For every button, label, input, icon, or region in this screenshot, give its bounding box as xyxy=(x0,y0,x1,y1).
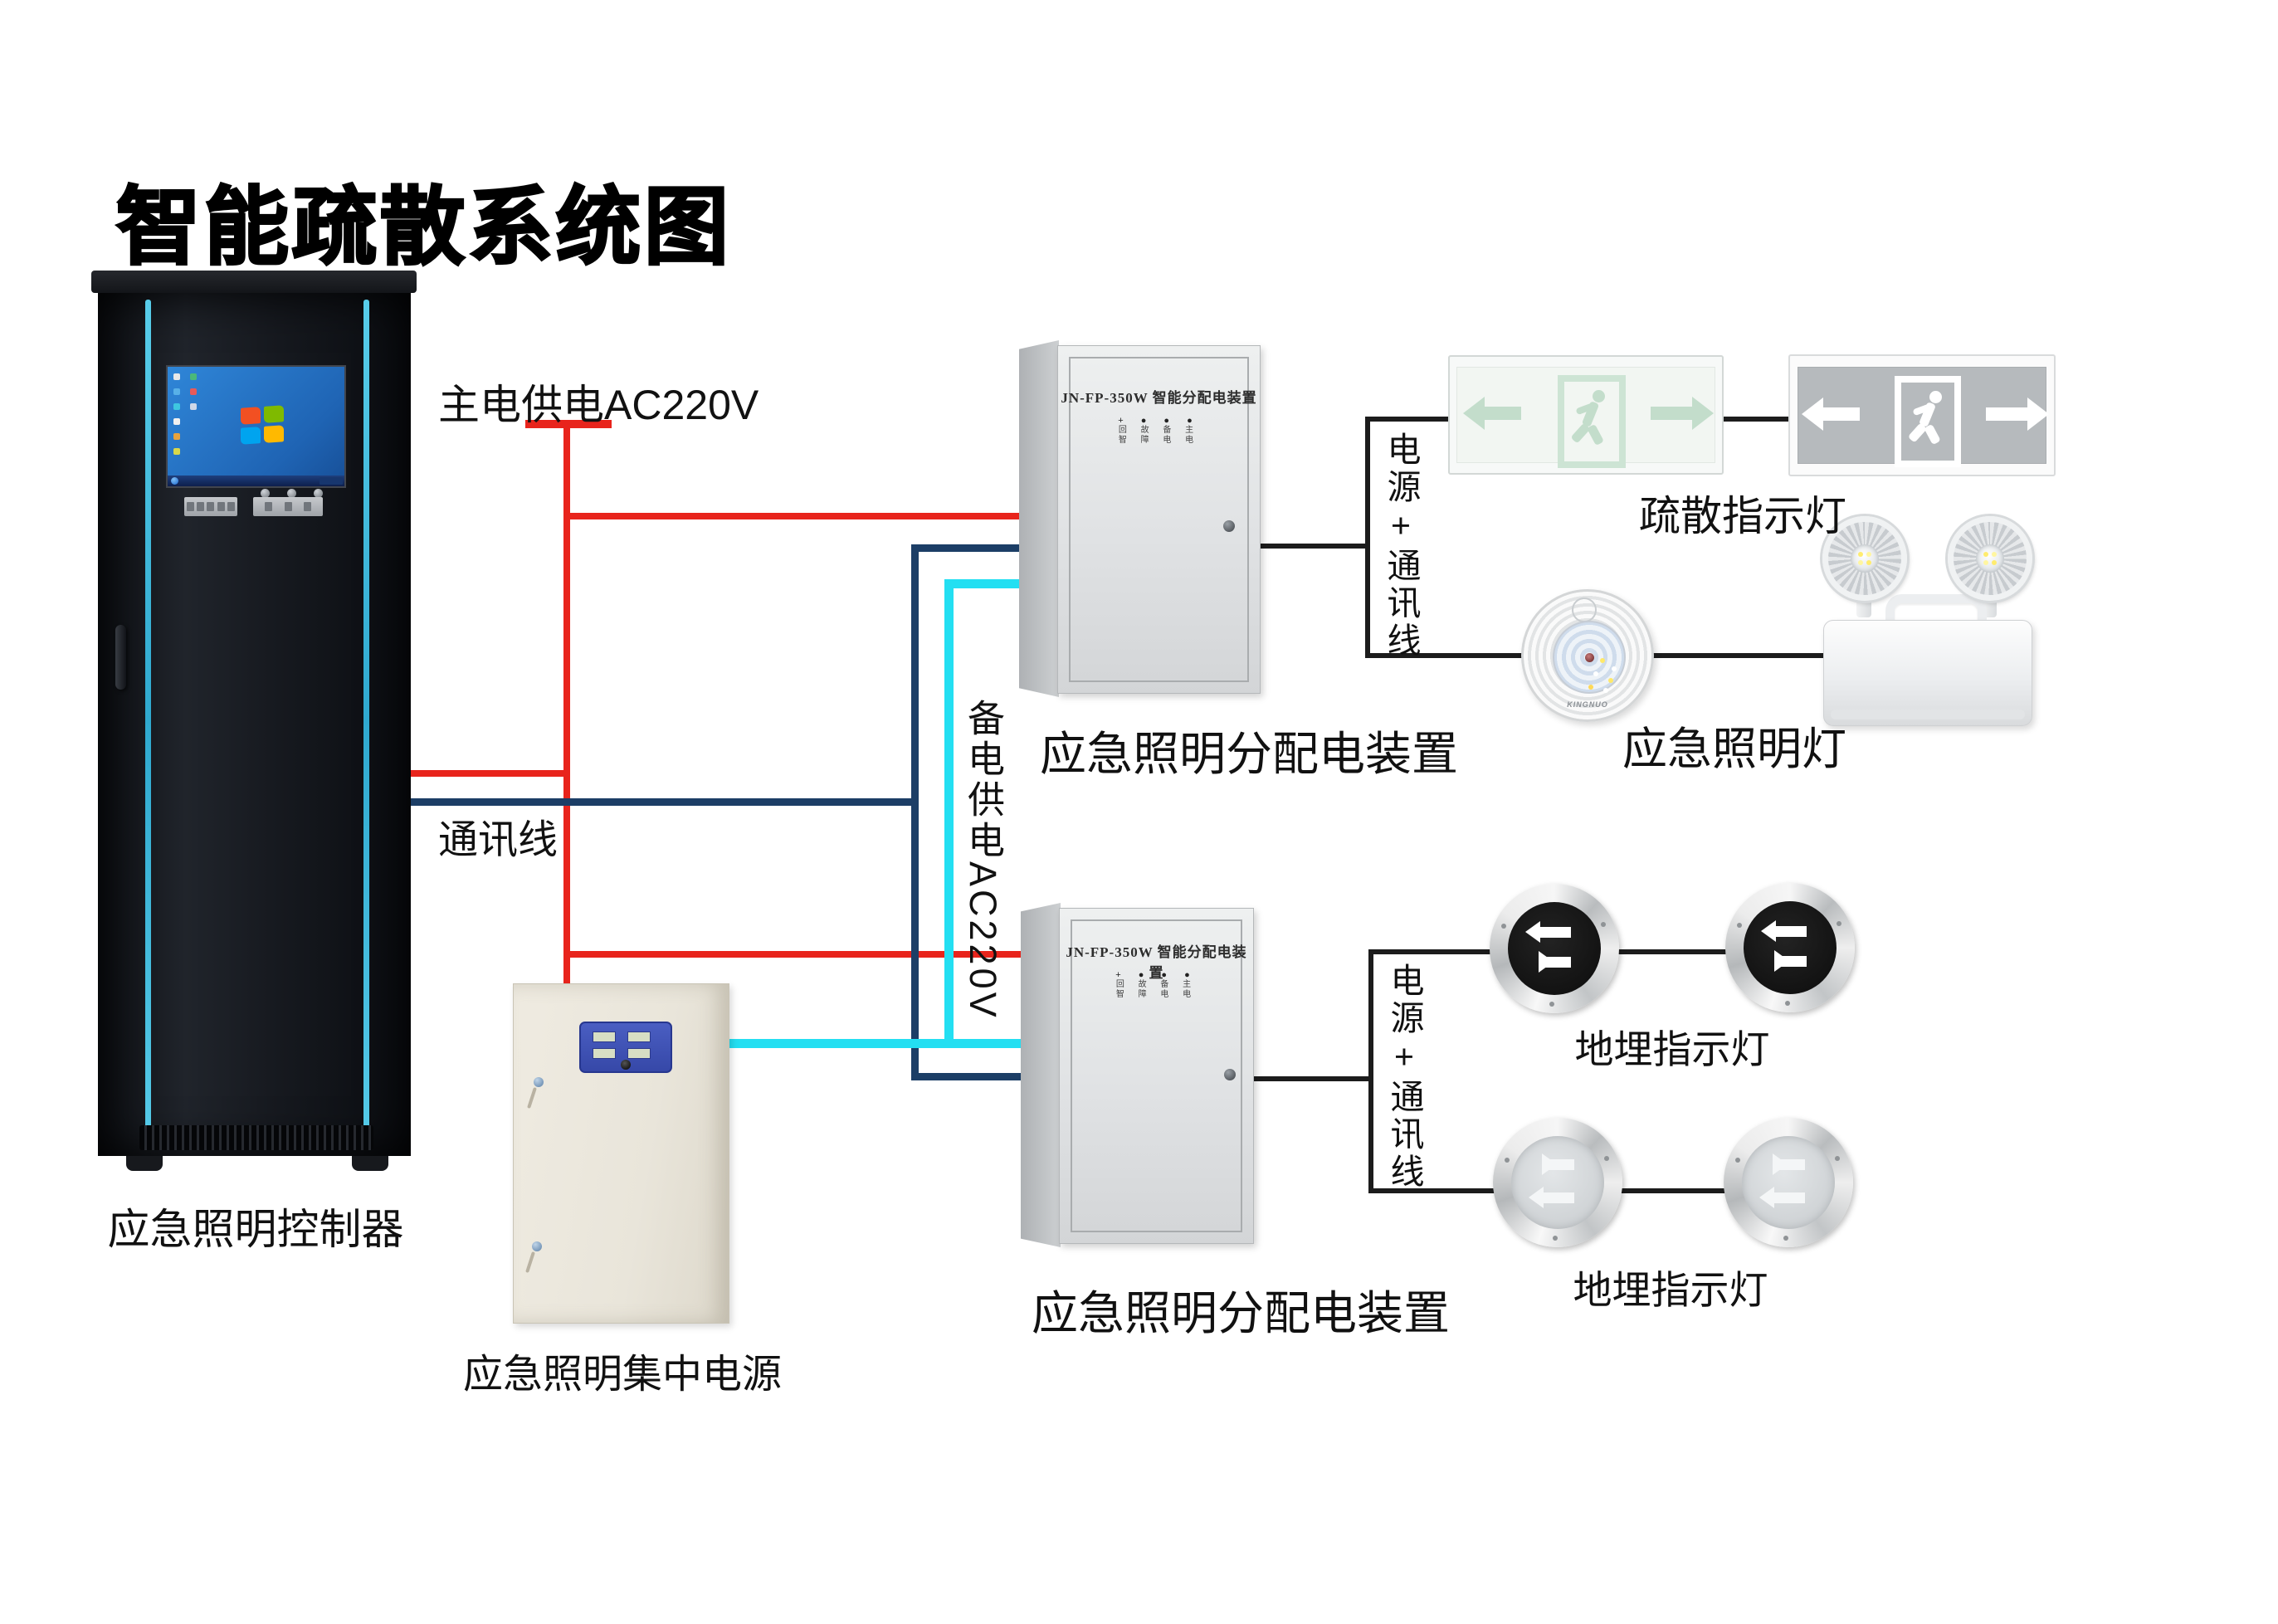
running-man-icon xyxy=(1571,390,1607,445)
cabinet-key-lock xyxy=(532,1241,542,1251)
comm-line-vertical xyxy=(911,544,919,1080)
cabinet-accent-stripe-right xyxy=(363,300,369,1141)
comm-branch-box2 xyxy=(911,1073,1021,1080)
box1-output-line xyxy=(1256,544,1368,549)
emergency-light-label: 应急照明灯 xyxy=(1614,712,1855,778)
distribution-box-2: JN-FP-350W 智能分配电装置 + ● ● ● 回 故 备 主 智 障 电… xyxy=(1021,903,1253,1247)
desktop-icon xyxy=(190,373,197,380)
ground-indicator-light-4 xyxy=(1724,1118,1853,1247)
ceiling-emergency-light: KINGNUO xyxy=(1521,589,1654,722)
twin-lamp-head-right xyxy=(1948,516,2032,601)
ground-light-label-1: 地埋指示灯 xyxy=(1560,1017,1784,1075)
light-face xyxy=(1508,902,1601,995)
bracket1-vertical xyxy=(1365,419,1370,658)
box2-output-line xyxy=(1253,1076,1373,1081)
box-lock xyxy=(1223,520,1235,532)
power-comm-label-1: 电源+通讯线 xyxy=(1376,432,1426,649)
power-supply-display-panel xyxy=(579,1022,672,1073)
windows-logo-icon xyxy=(241,405,284,445)
desktop-icon xyxy=(173,388,180,395)
cabinet-key-lock xyxy=(534,1077,544,1087)
bracket2-vertical xyxy=(1368,949,1373,1193)
cabinet-accent-stripe-left xyxy=(145,300,151,1141)
light-diffuser xyxy=(1553,621,1626,694)
ground-indicator-light-1 xyxy=(1490,884,1619,1013)
key-tail xyxy=(525,1251,535,1273)
brand-text: KINGNUO xyxy=(1524,700,1651,709)
main-power-vertical xyxy=(563,423,570,987)
desktop-icon xyxy=(173,418,180,425)
display-cell xyxy=(627,1048,651,1059)
box-side-panel xyxy=(1021,903,1061,1247)
comm-line-label: 通讯线 xyxy=(438,807,558,865)
comm-branch-box1 xyxy=(911,544,1021,552)
box-side-panel xyxy=(1019,340,1059,697)
controller-label: 应急照明控制器 xyxy=(98,1195,413,1256)
light-face xyxy=(1511,1136,1604,1229)
light-face xyxy=(1744,901,1837,994)
ground-light-label-2: 地埋指示灯 xyxy=(1559,1258,1783,1315)
key-tail xyxy=(527,1087,537,1109)
button-panel-right xyxy=(253,497,323,516)
display-cell xyxy=(593,1031,616,1042)
cabinet-screen xyxy=(166,365,346,488)
power-comm-label-2: 电源+通讯线 xyxy=(1379,963,1429,1180)
box-indicator-leds: + ● ● ● 回 故 备 主 智 障 电 电 xyxy=(1060,970,1253,1000)
cabinet-foot xyxy=(352,1156,388,1171)
diagram-canvas: 智能疏散系统图 主电供电AC220V 备电供电AC220V 通讯线 电源+通讯线… xyxy=(0,0,2278,1624)
exit-sign-label: 疏散指示灯 xyxy=(1627,483,1859,543)
box-indicator-leds: + ● ● ● 回 故 备 主 智 障 电 电 xyxy=(1058,416,1260,446)
distribution-box-1: JN-FP-350W 智能分配电装置 + ● ● ● 回 故 备 主 智 障 电… xyxy=(1019,340,1260,697)
cabinet-door-handle xyxy=(115,625,126,690)
desktop-icon xyxy=(173,403,180,410)
central-power-supply-box xyxy=(513,983,729,1324)
taskbar-clock xyxy=(320,477,343,485)
box-lock xyxy=(1224,1069,1236,1080)
start-orb-icon xyxy=(171,477,178,485)
backup-power-vertical xyxy=(944,579,954,1048)
display-cell xyxy=(627,1031,651,1042)
panel-knob xyxy=(621,1060,631,1070)
distribution-box-1-label: 应急照明分配电装置 xyxy=(1025,717,1473,784)
main-power-label: 主电供电AC220V xyxy=(438,372,759,432)
test-button xyxy=(1572,597,1597,622)
main-power-branch-box1 xyxy=(567,513,1021,519)
desktop-icon xyxy=(173,433,180,440)
controller-cabinet xyxy=(98,293,411,1156)
display-cell xyxy=(593,1048,616,1059)
box-front-panel: JN-FP-350W 智能分配电装置 + ● ● ● 回 故 备 主 智 障 电… xyxy=(1059,908,1254,1244)
desktop-icon xyxy=(190,403,197,410)
box-front-panel: JN-FP-350W 智能分配电装置 + ● ● ● 回 故 备 主 智 障 电… xyxy=(1057,345,1261,694)
box-model-title: JN-FP-350W 智能分配电装置 xyxy=(1058,386,1260,407)
light-face xyxy=(1742,1136,1835,1229)
center-dot xyxy=(1585,653,1594,662)
exit-sign-1 xyxy=(1448,355,1724,475)
exit-sign-2 xyxy=(1788,354,2056,476)
ground-indicator-light-2 xyxy=(1725,883,1855,1012)
desktop-icon xyxy=(190,388,197,395)
ground-indicator-light-3 xyxy=(1493,1118,1622,1247)
central-power-supply-label: 应急照明集中电源 xyxy=(456,1341,788,1399)
taskbar xyxy=(168,475,344,486)
cabinet-foot xyxy=(126,1156,163,1171)
cabinet-vent-grille xyxy=(139,1125,373,1150)
main-power-branch-cabinet xyxy=(411,770,568,777)
page-title: 智能疏散系统图 xyxy=(116,159,732,281)
backup-power-horizontal xyxy=(728,1039,1021,1048)
distribution-box-2-label: 应急照明分配电装置 xyxy=(1017,1276,1465,1344)
comm-line-horizontal xyxy=(411,798,919,806)
running-man-icon xyxy=(1908,391,1944,444)
twin-head-emergency-light-body xyxy=(1823,620,2032,726)
backup-power-label: 备电供电AC220V xyxy=(956,699,1010,1039)
desktop-icon xyxy=(173,373,180,380)
button-panel-left xyxy=(184,497,237,516)
desktop-icon xyxy=(173,448,180,455)
backup-power-branch-box1 xyxy=(944,579,1021,588)
